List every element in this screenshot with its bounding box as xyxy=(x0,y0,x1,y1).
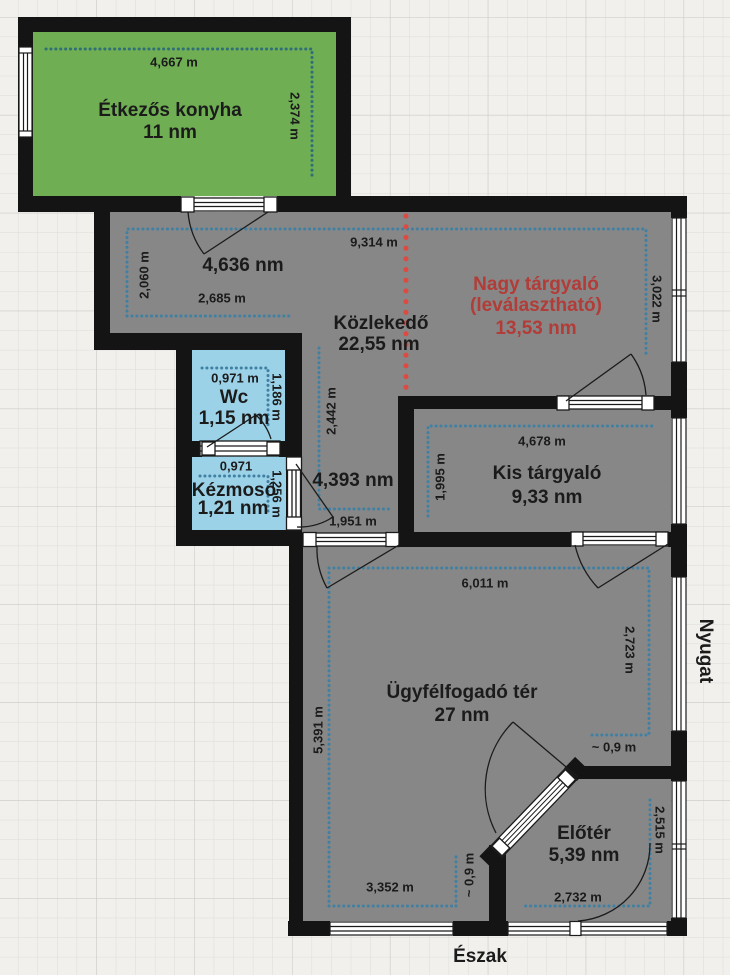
svg-text:1,995 m: 1,995 m xyxy=(433,453,448,501)
svg-text:Étkezős konyha: Étkezős konyha xyxy=(98,99,242,121)
svg-text:Ügyfélfogadó tér: Ügyfélfogadó tér xyxy=(387,682,539,703)
svg-text:1,186 m: 1,186 m xyxy=(270,373,285,421)
svg-text:2,442 m: 2,442 m xyxy=(324,387,339,435)
svg-text:1,951 m: 1,951 m xyxy=(329,514,377,529)
svg-text:22,55 nm: 22,55 nm xyxy=(338,334,419,355)
svg-text:2,732 m: 2,732 m xyxy=(554,890,602,905)
svg-text:5,39 nm: 5,39 nm xyxy=(549,845,620,866)
svg-text:1,256 m: 1,256 m xyxy=(270,470,285,518)
svg-text:13,53 nm: 13,53 nm xyxy=(495,318,576,339)
svg-text:Kis tárgyaló: Kis tárgyaló xyxy=(493,463,602,484)
svg-text:3,022 m: 3,022 m xyxy=(650,275,665,323)
svg-text:1,15 nm: 1,15 nm xyxy=(199,408,270,429)
svg-text:0,971 m: 0,971 m xyxy=(211,371,259,386)
svg-text:1,21 nm: 1,21 nm xyxy=(198,498,269,519)
svg-text:0,971: 0,971 xyxy=(220,459,253,474)
svg-text:9,33 nm: 9,33 nm xyxy=(512,487,583,508)
svg-text:11 nm: 11 nm xyxy=(143,122,197,143)
svg-text:2,060 m: 2,060 m xyxy=(137,251,152,299)
svg-text:9,314 m: 9,314 m xyxy=(350,235,398,250)
svg-text:4,636 nm: 4,636 nm xyxy=(202,255,283,276)
svg-text:5,391 m: 5,391 m xyxy=(311,706,326,754)
svg-text:4,678 m: 4,678 m xyxy=(518,434,566,449)
svg-text:27 nm: 27 nm xyxy=(435,705,490,726)
svg-text:2,685 m: 2,685 m xyxy=(198,291,246,306)
svg-text:~ 0,9 m: ~ 0,9 m xyxy=(592,740,636,755)
svg-text:3,352 m: 3,352 m xyxy=(366,880,414,895)
svg-text:Nyugat: Nyugat xyxy=(695,619,716,684)
svg-text:Közlekedő: Közlekedő xyxy=(333,313,428,334)
svg-text:~ 0,9 m: ~ 0,9 m xyxy=(462,853,477,897)
svg-text:4,667 m: 4,667 m xyxy=(150,55,198,70)
svg-text:Nagy tárgyaló: Nagy tárgyaló xyxy=(473,274,599,295)
svg-text:2,515 m: 2,515 m xyxy=(653,806,668,854)
svg-text:(leválasztható): (leválasztható) xyxy=(470,295,602,316)
svg-text:Wc: Wc xyxy=(220,387,249,408)
svg-text:2,374 m: 2,374 m xyxy=(288,92,303,140)
svg-text:Előtér: Előtér xyxy=(557,823,611,844)
svg-text:Észak: Észak xyxy=(453,945,507,967)
svg-text:4,393 nm: 4,393 nm xyxy=(312,470,393,491)
svg-text:2,723 m: 2,723 m xyxy=(623,626,638,674)
svg-text:6,011 m: 6,011 m xyxy=(462,576,509,591)
